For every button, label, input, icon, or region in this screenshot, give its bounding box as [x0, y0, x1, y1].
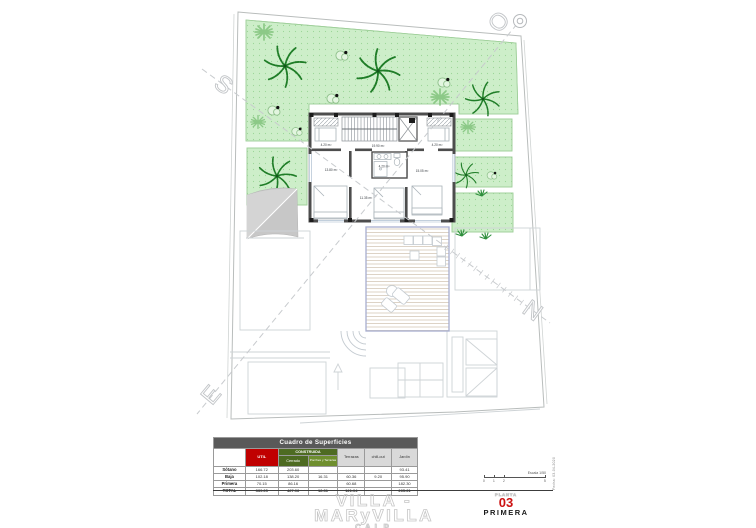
row-label: Primera: [214, 481, 246, 488]
table-row-sotano: Sótano 166.72 203.60 93.41: [214, 467, 418, 474]
cell-jardin: 95.90: [392, 474, 418, 481]
compass-letter-e: E: [196, 380, 227, 410]
cell-util: 339.05: [245, 488, 278, 496]
header-terrazas: Terrazas: [338, 449, 365, 467]
row-label: TOTAL: [214, 488, 246, 496]
room-label-bath: 4.20 m²: [379, 165, 390, 169]
row-label: Baja: [214, 474, 246, 481]
cell-util: 70.15: [245, 481, 278, 488]
lift-shaft: [399, 117, 417, 141]
table-row-primera: Primera 70.15 86.16 60.68 182.30: [214, 481, 418, 488]
room-label-hall: 19.90 m²: [372, 144, 385, 148]
table-corner-cell: [214, 449, 246, 467]
cell-porches: 16.31: [308, 474, 338, 481]
scale-tick-0: 0: [483, 479, 485, 483]
wardrobe-left: [314, 118, 338, 126]
scale-bar: Escala 1/50 0 1 2 5: [484, 471, 546, 487]
cell-util: 166.72: [245, 467, 278, 474]
house-plan: 4.20 m² 4.20 m² 19.90 m² 4.20 m² 13.80 m…: [309, 113, 456, 223]
planta-name: PRIMERA: [476, 508, 536, 517]
table-title: Cuadro de Superficies: [214, 438, 418, 449]
survey-point-icon: [514, 15, 527, 28]
header-construida: CONSTRUIDA: [278, 449, 338, 456]
header-util: UTIL: [245, 449, 278, 467]
beds-bottom: [314, 186, 442, 219]
date-text: Fecha: 03-04-2020: [552, 444, 556, 490]
cell-cerrado: 203.60: [278, 467, 308, 474]
project-name: VILLA - MARyVILLA: [288, 493, 460, 523]
cell-cerrado: 138.20: [278, 474, 308, 481]
planta-number: 03: [476, 497, 536, 508]
room-label-bed-right: 15.05 m²: [416, 169, 429, 173]
scale-text: Escala 1/50: [528, 471, 546, 475]
cell-porches: [308, 481, 338, 488]
surfaces-table: Cuadro de Superficies UTIL CONSTRUIDA Te…: [213, 437, 418, 496]
cell-jardin: 182.30: [392, 481, 418, 488]
cell-porches: [308, 467, 338, 474]
header-chillout: chill-out: [365, 449, 392, 467]
project-title-block: VILLA - MARyVILLA CALP: [288, 493, 460, 528]
compass-letter-s: S: [209, 69, 238, 100]
room-label-bed-mid: 11.35 m²: [360, 196, 372, 200]
header-porches: Porches y Terrazas: [308, 456, 338, 467]
cell-cerrado: 86.16: [278, 481, 308, 488]
cell-terrazas: 60.68: [338, 481, 365, 488]
cell-terrazas: 60.36: [338, 474, 365, 481]
plan-number-block: PLANTA 03 PRIMERA: [476, 492, 536, 517]
header-cerrado: Cerrado: [278, 456, 308, 467]
scale-tick-2: 2: [503, 479, 505, 483]
room-label-closet-right: 4.20 m²: [432, 143, 443, 147]
table-row-baja: Baja 102.18 138.20 16.31 60.36 9.20 95.9…: [214, 474, 418, 481]
scale-tick-5: 5: [544, 479, 546, 483]
cell-terrazas: [338, 467, 365, 474]
cell-util: 102.18: [245, 474, 278, 481]
scale-tick-1: 1: [493, 479, 495, 483]
room-label-bed-left: 13.80 m²: [325, 168, 338, 172]
room-label-closet-left: 4.20 m²: [321, 143, 332, 147]
drawing-sheet: 4.20 m² 4.20 m² 19.90 m² 4.20 m² 13.80 m…: [0, 0, 756, 528]
cell-jardin: 93.41: [392, 467, 418, 474]
header-jardin: Jardín: [392, 449, 418, 467]
cell-chillout: [365, 467, 392, 474]
cell-chillout: 9.20: [365, 474, 392, 481]
cell-chillout: [365, 481, 392, 488]
row-label: Sótano: [214, 467, 246, 474]
